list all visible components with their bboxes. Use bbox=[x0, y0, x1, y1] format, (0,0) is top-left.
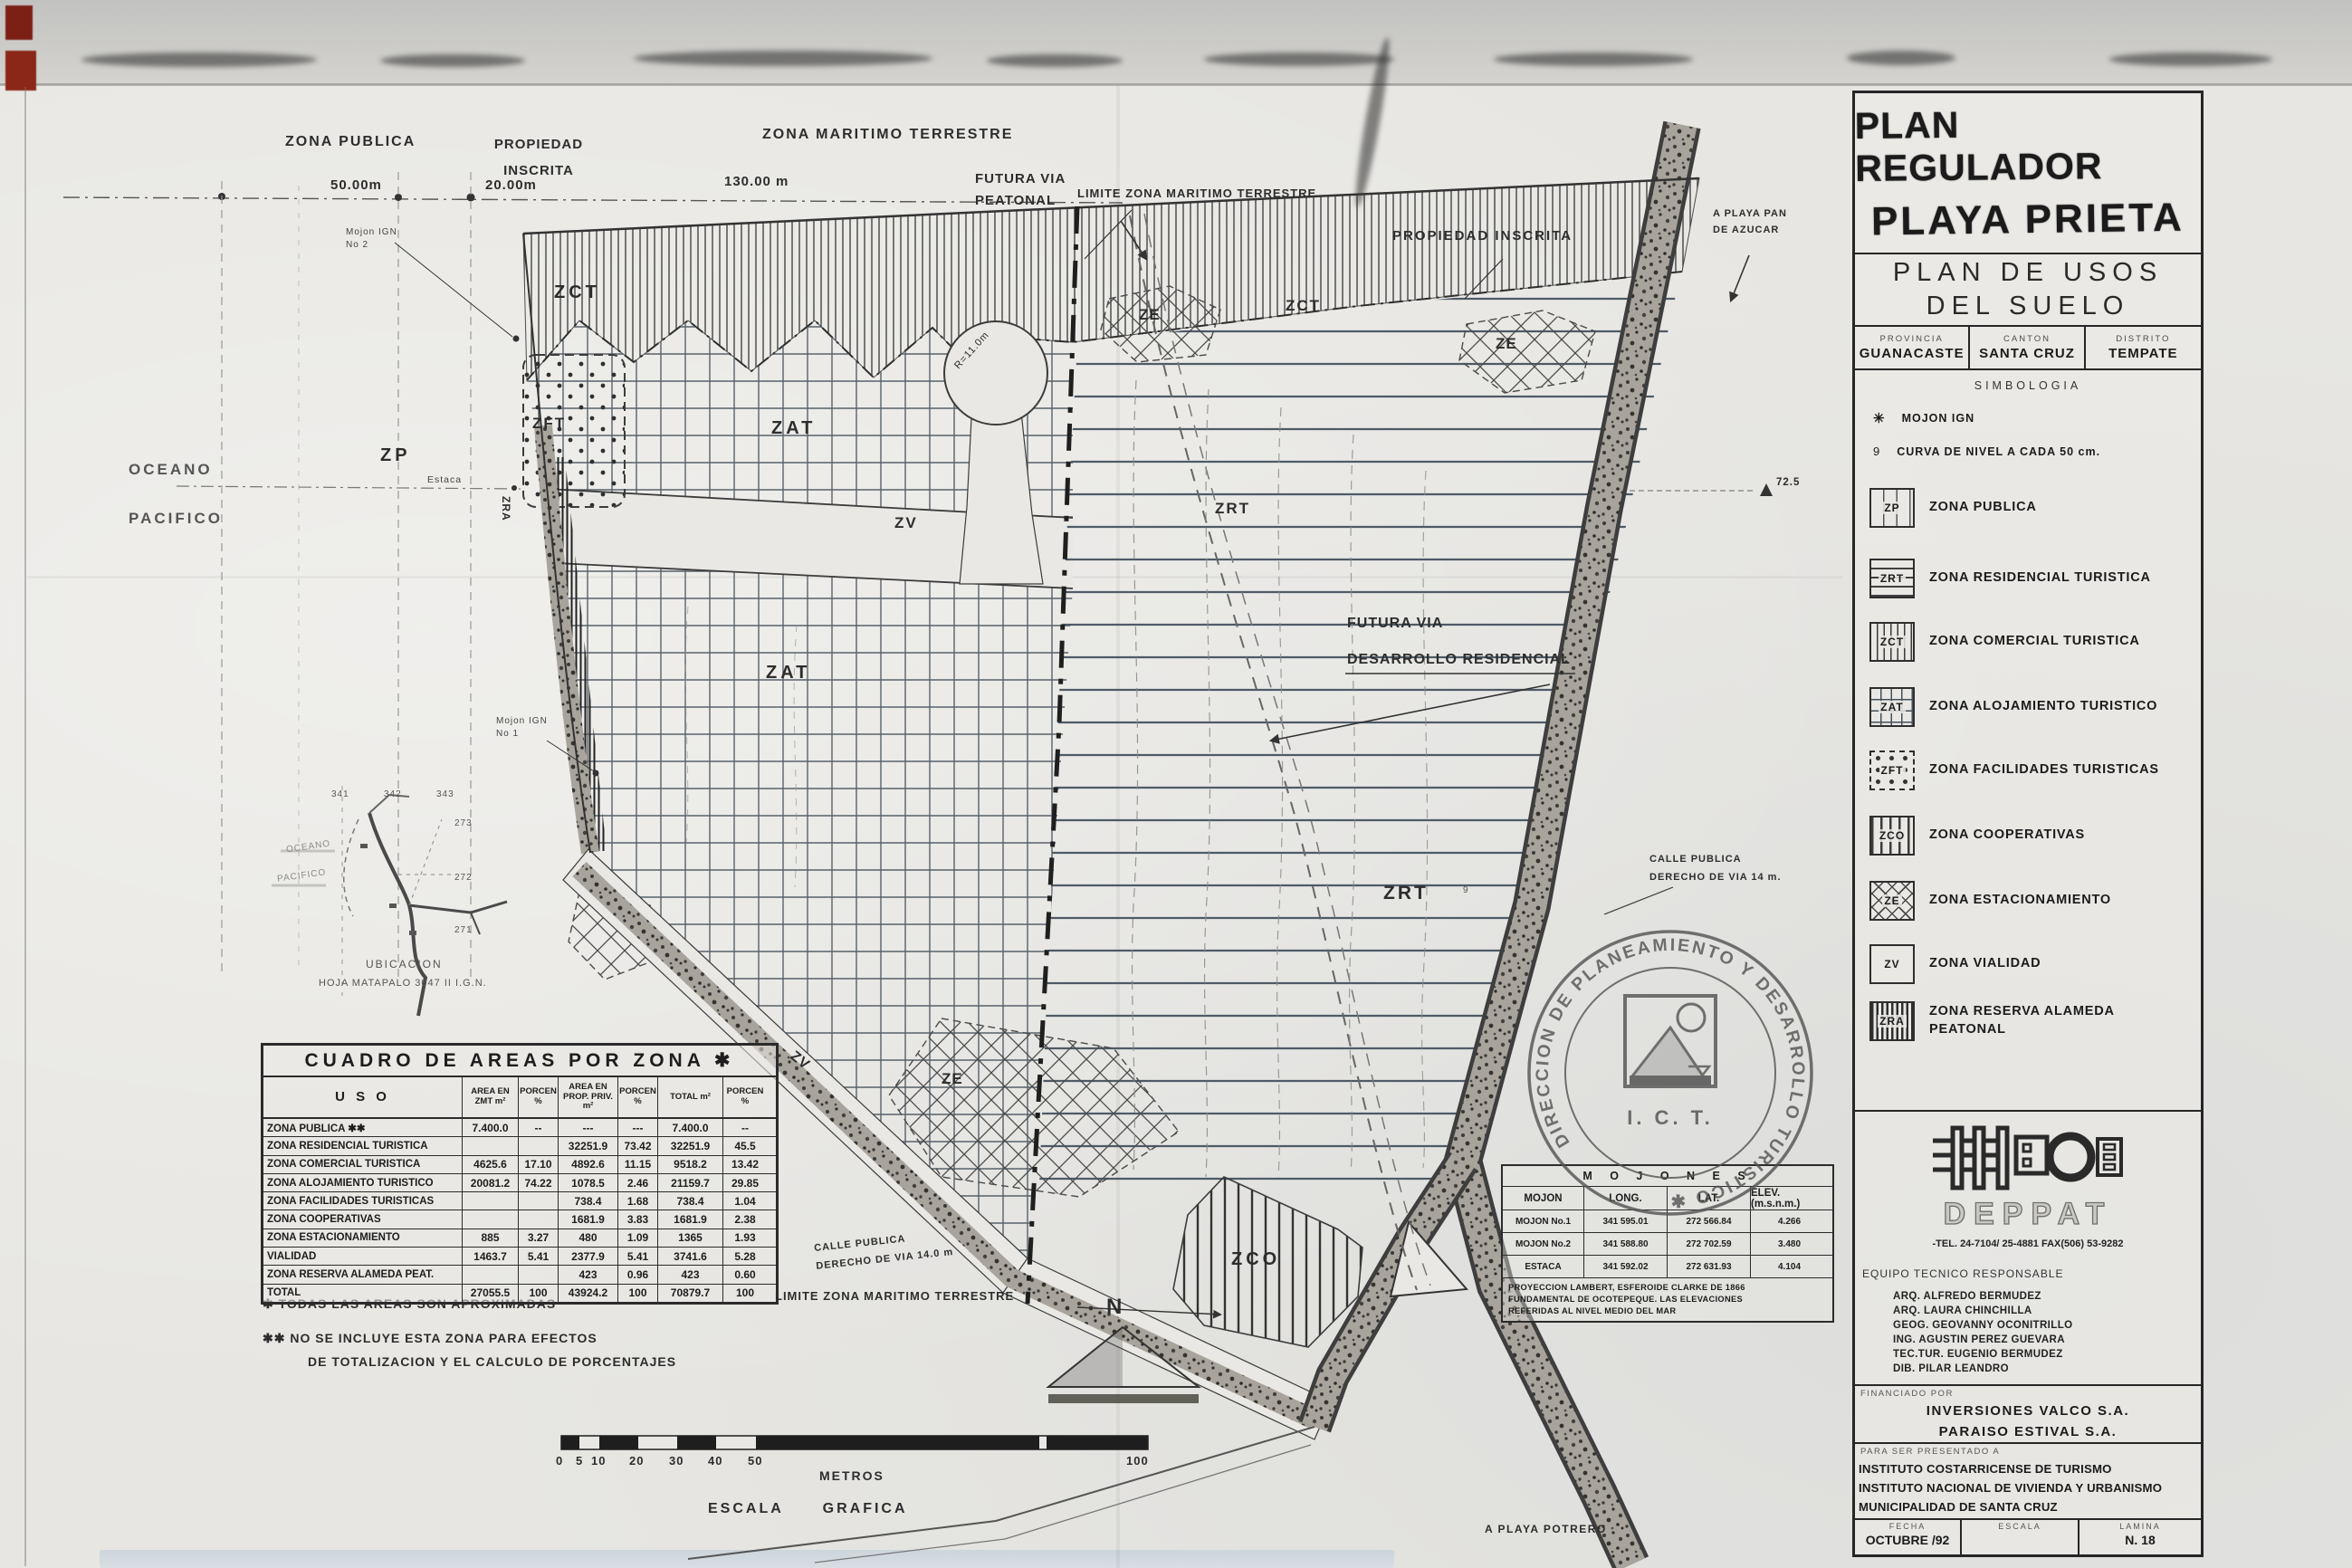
cell-area-priv: 43924.2 bbox=[559, 1285, 618, 1302]
areas-table-body: ZONA PUBLICA ✱✱ 7.400.0 -- --- --- 7.400… bbox=[263, 1119, 776, 1302]
label-calle-publica-right: CALLE PUBLICA DERECHO DE VIA 14 m. bbox=[1649, 851, 1782, 887]
label-zone-zp: ZP bbox=[380, 445, 411, 466]
note-exclusion-1: ✱✱ NO SE INCLUYE ESTA ZONA PARA EFECTOS bbox=[263, 1331, 598, 1346]
subtitle-line-2: DEL SUELO bbox=[1927, 292, 2130, 321]
cell-porcen-zmt: 100 bbox=[519, 1285, 559, 1302]
label-limite-zmt-top: LIMITE ZONA MARITIMO TERRESTRE bbox=[1077, 186, 1316, 200]
cell-uso: ZONA ESTACIONAMIENTO bbox=[263, 1229, 463, 1247]
cell-area-zmt: 885 bbox=[463, 1229, 519, 1247]
label-zona-maritimo-terrestre: ZONA MARITIMO TERRESTRE bbox=[762, 127, 1013, 143]
cell-porcen-priv: 2.46 bbox=[618, 1174, 658, 1191]
team-heading: EQUIPO TECNICO RESPONSABLE bbox=[1862, 1267, 2064, 1280]
legend-row-ze: ZE ZONA ESTACIONAMIENTO bbox=[1869, 881, 2111, 921]
areas-table-row: ZONA COMERCIAL TURISTICA 4625.6 17.10 48… bbox=[263, 1156, 776, 1174]
deppat-logo bbox=[1933, 1124, 2123, 1193]
firm-section: DEPPAT -TEL. 24-7104/ 25-4881 FAX(506) 5… bbox=[1855, 1112, 2201, 1386]
cell-total: 9518.2 bbox=[658, 1156, 723, 1173]
cell-porcen-zmt bbox=[519, 1137, 559, 1154]
cell-area-zmt bbox=[463, 1210, 519, 1228]
cell-porcen-zmt: 5.41 bbox=[519, 1248, 559, 1265]
swatch-zra: ZRA bbox=[1869, 1001, 1915, 1041]
cell-porcen-total: 2.38 bbox=[723, 1210, 767, 1228]
cell-porcen-total: 29.85 bbox=[723, 1174, 767, 1191]
zone-label: ZONA FACILIDADES TURISTICAS bbox=[1929, 761, 2159, 779]
areas-table-row: ZONA ALOJAMIENTO TURISTICO 20081.2 74.22… bbox=[263, 1174, 776, 1192]
swatch-zco: ZCO bbox=[1869, 816, 1915, 856]
cell-porcen-priv: 11.15 bbox=[618, 1156, 658, 1173]
cell-area-priv: 1078.5 bbox=[559, 1174, 618, 1191]
cell-porcen-zmt bbox=[519, 1192, 559, 1209]
cell-area-priv: 423 bbox=[559, 1266, 618, 1283]
cell-lat: 272 631.93 bbox=[1668, 1256, 1751, 1277]
team-member: ARQ. LAURA CHINCHILLA bbox=[1893, 1304, 2072, 1318]
areas-table-header: U S O AREA EN ZMT m² PORCEN % AREA EN PR… bbox=[263, 1077, 776, 1119]
scale-tick-50: 50 bbox=[748, 1454, 762, 1468]
swatch-zat: ZAT bbox=[1869, 687, 1915, 727]
title-block-panel: PLAN REGULADOR PLAYA PRIETA PLAN DE USOS… bbox=[1852, 91, 2204, 1557]
cell-mojon: ESTACA bbox=[1503, 1256, 1584, 1277]
zone-label: ZONA ALOJAMIENTO TURISTICO bbox=[1929, 698, 2157, 716]
legend-row-zco: ZCO ZONA COOPERATIVAS bbox=[1869, 816, 2085, 856]
cell-uso: ZONA PUBLICA ✱✱ bbox=[263, 1119, 463, 1136]
region-canton: CANTON SANTA CRUZ bbox=[1970, 327, 2085, 368]
cell-area-priv: 1681.9 bbox=[559, 1210, 618, 1228]
label-oceano-pacifico: OCEANO PACIFICO bbox=[129, 445, 223, 544]
areas-table-row: ZONA PUBLICA ✱✱ 7.400.0 -- --- --- 7.400… bbox=[263, 1119, 776, 1137]
cell-porcen-priv: --- bbox=[618, 1119, 658, 1136]
label-zone-zct-b: ZCT bbox=[1286, 297, 1321, 315]
label-zona-publica-top: ZONA PUBLICA bbox=[285, 134, 416, 150]
cell-porcen-zmt: 74.22 bbox=[519, 1174, 559, 1191]
zone-label: ZONA VIALIDAD bbox=[1929, 955, 2041, 973]
cell-porcen-zmt: 3.27 bbox=[519, 1229, 559, 1247]
label-dim-130: 130.00 m bbox=[724, 174, 789, 189]
inset-caption-2: HOJA MATAPALO 3047 II I.G.N. bbox=[319, 978, 487, 989]
label-dim-20: 20.00m bbox=[485, 177, 537, 193]
legend-row-zp: ZP ZONA PUBLICA bbox=[1869, 488, 2037, 528]
financed-name: INVERSIONES VALCO S.A. bbox=[1855, 1401, 2201, 1421]
cell-porcen-priv: 3.83 bbox=[618, 1210, 658, 1228]
swatch-zv: ZV bbox=[1869, 944, 1915, 984]
footer-escala: ESCALA bbox=[1962, 1520, 2080, 1554]
inset-grid-273: 273 bbox=[454, 818, 473, 828]
financed-heading: FINANCIADO POR bbox=[1860, 1389, 1954, 1399]
inset-grid-343: 343 bbox=[436, 789, 454, 799]
label-mojon-2: Mojon IGN No 2 bbox=[346, 226, 397, 252]
cell-total: 21159.7 bbox=[658, 1174, 723, 1191]
scale-tick-20: 20 bbox=[629, 1454, 644, 1468]
swatch-zp: ZP bbox=[1869, 488, 1915, 528]
cell-area-zmt: 27055.5 bbox=[463, 1285, 519, 1302]
cell-total: 1365 bbox=[658, 1229, 723, 1247]
legend-row-zrt: ZRT ZONA RESIDENCIAL TURISTICA bbox=[1869, 559, 2151, 598]
label-dim-50: 50.00m bbox=[330, 177, 382, 193]
cell-porcen-total: 45.5 bbox=[723, 1137, 767, 1154]
areas-table-row: TOTAL 27055.5 100 43924.2 100 70879.7 10… bbox=[263, 1285, 776, 1302]
label-line: No 2 bbox=[346, 239, 397, 252]
label-zone-zv-a: ZV bbox=[894, 514, 918, 532]
header-cell: PORCEN % bbox=[723, 1077, 767, 1117]
cell-total: 738.4 bbox=[658, 1192, 723, 1209]
label-zone-zrt-b: ZRT bbox=[1383, 883, 1429, 904]
zone-label: ZONA COMERCIAL TURISTICA bbox=[1929, 633, 2140, 651]
cell-porcen-zmt: -- bbox=[519, 1119, 559, 1136]
title-line-2: PLAYA PRIETA bbox=[1871, 196, 2185, 245]
firm-contact: -TEL. 24-7104/ 25-4881 FAX(506) 53-9282 bbox=[1855, 1238, 2201, 1249]
cell-area-priv: --- bbox=[559, 1119, 618, 1136]
label-line: OCEANO bbox=[129, 445, 223, 494]
scale-unit: METROS bbox=[819, 1468, 884, 1483]
presented-heading: PARA SER PRESENTADO A bbox=[1860, 1447, 2000, 1457]
north-letter: N bbox=[1106, 1295, 1123, 1320]
team-list: ARQ. ALFREDO BERMUDEZARQ. LAURA CHINCHIL… bbox=[1893, 1289, 2072, 1376]
scale-tick-0: 0 bbox=[556, 1454, 563, 1468]
cell-uso: ZONA FACILIDADES TURISTICAS bbox=[263, 1192, 463, 1209]
team-member: ING. AGUSTIN PEREZ GUEVARA bbox=[1893, 1333, 2072, 1347]
legend-row-zv: ZV ZONA VIALIDAD bbox=[1869, 944, 2041, 984]
note-line: REFERIDAS AL NIVEL MEDIO DEL MAR bbox=[1508, 1305, 1827, 1317]
legend-row-zct: ZCT ZONA COMERCIAL TURISTICA bbox=[1869, 622, 2140, 662]
swatch-zft: ZFT bbox=[1869, 751, 1915, 790]
label-a-playa-pan: A PLAYA PAN DE AZUCAR bbox=[1713, 206, 1787, 238]
team-member: DIB. PILAR LEANDRO bbox=[1893, 1362, 2072, 1376]
presented-name: INSTITUTO COSTARRICENSE DE TURISMO bbox=[1859, 1459, 2162, 1478]
label-zone-ze-a: ZE bbox=[1139, 306, 1161, 324]
footer-label: ESCALA bbox=[1962, 1522, 2078, 1531]
label-elevation: 72.5 bbox=[1776, 477, 1800, 488]
areas-table-row: VIALIDAD 1463.7 5.41 2377.9 5.41 3741.6 … bbox=[263, 1248, 776, 1266]
label-a-playa-potrero: A PLAYA POTRERO bbox=[1485, 1523, 1607, 1535]
cell-uso: ZONA RESIDENCIAL TURISTICA bbox=[263, 1137, 463, 1154]
cell-uso: ZONA COOPERATIVAS bbox=[263, 1210, 463, 1228]
team-member: ARQ. ALFREDO BERMUDEZ bbox=[1893, 1289, 2072, 1304]
legend-row-zft: ZFT ZONA FACILIDADES TURISTICAS bbox=[1869, 751, 2159, 790]
scale-bar bbox=[561, 1436, 1148, 1449]
inset-grid-341: 341 bbox=[331, 789, 349, 799]
financed-section: FINANCIADO POR INVERSIONES VALCO S.A.PAR… bbox=[1855, 1386, 2201, 1444]
zone-code: ZFT bbox=[1879, 764, 1906, 777]
label-estaca: Estaca bbox=[427, 474, 462, 485]
label-futura-via-desarrollo-2: DESARROLLO RESIDENCIAL bbox=[1347, 652, 1571, 668]
cell-area-zmt bbox=[463, 1137, 519, 1154]
cell-uso: TOTAL bbox=[263, 1285, 463, 1302]
scale-caption: ESCALA GRAFICA bbox=[708, 1501, 908, 1517]
cell-porcen-total: 1.93 bbox=[723, 1229, 767, 1247]
region-value: GUANACASTE bbox=[1860, 346, 1965, 361]
scale-tick-10: 10 bbox=[591, 1454, 606, 1468]
legend-section: SIMBOLOGIA ✳ MOJON IGN 9 CURVA DE NIVEL … bbox=[1855, 370, 2201, 1112]
label-zone-zra: ZRA bbox=[500, 496, 512, 521]
zone-code: ZCO bbox=[1878, 829, 1907, 842]
label-zone-ze-c: ZE bbox=[942, 1070, 963, 1088]
footer-label: FECHA bbox=[1855, 1522, 1960, 1531]
cell-uso: VIALIDAD bbox=[263, 1248, 463, 1265]
presented-section: PARA SER PRESENTADO A INSTITUTO COSTARRI… bbox=[1855, 1444, 2201, 1520]
cell-porcen-total: -- bbox=[723, 1119, 767, 1136]
footer-label: LAMINA bbox=[2080, 1522, 2201, 1531]
label-zone-zft: ZFT bbox=[532, 415, 566, 433]
cell-total: 1681.9 bbox=[658, 1210, 723, 1228]
label-line: CALLE PUBLICA bbox=[1649, 851, 1782, 869]
cell-porcen-total: 13.42 bbox=[723, 1156, 767, 1173]
legend-label: MOJON IGN bbox=[1902, 412, 1975, 425]
label-propiedad-inscrita-left: PROPIEDAD INSCRITA bbox=[477, 132, 600, 184]
zone-label: ZONA RESIDENCIAL TURISTICA bbox=[1929, 569, 2151, 588]
region-label: PROVINCIA bbox=[1880, 334, 1944, 344]
footer-value: N. 18 bbox=[2080, 1533, 2201, 1547]
cell-uso: ZONA RESERVA ALAMEDA PEAT. bbox=[263, 1266, 463, 1283]
zone-label: ZONA RESERVA ALAMEDA PEATONAL bbox=[1929, 1003, 2186, 1038]
region-value: TEMPATE bbox=[2108, 346, 2177, 361]
title-line-1: PLAN REGULADOR bbox=[1855, 101, 2202, 190]
areas-table-row: ZONA RESERVA ALAMEDA PEAT. 423 0.96 423 … bbox=[263, 1266, 776, 1284]
plan-title: PLAN REGULADOR PLAYA PRIETA bbox=[1855, 93, 2201, 254]
scale-tick-5: 5 bbox=[576, 1454, 583, 1468]
areas-table: CUADRO DE AREAS POR ZONA ✱ U S O AREA EN… bbox=[261, 1043, 779, 1305]
label-line: FUTURA VIA bbox=[975, 168, 1066, 190]
scale-tick-40: 40 bbox=[708, 1454, 722, 1468]
label-zone-zat-b: ZAT bbox=[766, 663, 810, 684]
inset-grid-272: 272 bbox=[454, 873, 473, 883]
cell-total: 3741.6 bbox=[658, 1248, 723, 1265]
cell-porcen-total: 5.28 bbox=[723, 1248, 767, 1265]
zone-label: ZONA PUBLICA bbox=[1929, 499, 2037, 517]
inset-grid-271: 271 bbox=[454, 925, 473, 935]
legend-row-zat: ZAT ZONA ALOJAMIENTO TURISTICO bbox=[1869, 687, 2157, 727]
swatch-ze: ZE bbox=[1869, 881, 1915, 921]
cell-area-priv: 480 bbox=[559, 1229, 618, 1247]
zone-code: ZV bbox=[1882, 958, 1901, 970]
cell-porcen-total: 0.60 bbox=[723, 1266, 767, 1283]
cell-porcen-priv: 100 bbox=[618, 1285, 658, 1302]
zone-label: ZONA COOPERATIVAS bbox=[1929, 827, 2085, 845]
footer-fecha: FECHA OCTUBRE /92 bbox=[1855, 1520, 1962, 1554]
cell-long: 341 592.02 bbox=[1584, 1256, 1668, 1277]
cell-area-zmt bbox=[463, 1192, 519, 1209]
footer-value: OCTUBRE /92 bbox=[1855, 1533, 1960, 1547]
cell-porcen-zmt bbox=[519, 1266, 559, 1283]
cell-porcen-zmt bbox=[519, 1210, 559, 1228]
note-line: PROYECCION LAMBERT, ESFEROIDE CLARKE DE … bbox=[1508, 1282, 1827, 1294]
note-exclusion-2: DE TOTALIZACION Y EL CALCULO DE PORCENTA… bbox=[308, 1354, 676, 1369]
label-contour-9: 9 bbox=[1463, 885, 1469, 895]
label-line: Mojon IGN bbox=[496, 715, 548, 728]
region-value: SANTA CRUZ bbox=[1979, 346, 2075, 361]
ict-stamp: DIRECCION DE PLANEAMIENTO Y DESARROLLO T… bbox=[1503, 905, 1838, 1240]
label-line: No 1 bbox=[496, 728, 548, 741]
inset-grid-342: 342 bbox=[384, 789, 402, 799]
cell-porcen-priv: 1.09 bbox=[618, 1229, 658, 1247]
firm-name: DEPPAT bbox=[1855, 1197, 2201, 1232]
label-zone-zct-a: ZCT bbox=[554, 282, 600, 303]
region-distrito: DISTRITO TEMPATE bbox=[2086, 327, 2201, 368]
label-zone-zrt-a: ZRT bbox=[1215, 500, 1250, 518]
cell-area-zmt: 20081.2 bbox=[463, 1174, 519, 1191]
cell-porcen-priv: 73.42 bbox=[618, 1137, 658, 1154]
cell-porcen-priv: 0.96 bbox=[618, 1266, 658, 1283]
cell-area-zmt: 4625.6 bbox=[463, 1156, 519, 1173]
team-member: TEC.TUR. EUGENIO BERMUDEZ bbox=[1893, 1347, 2072, 1362]
areas-table-row: ZONA COOPERATIVAS 1681.9 3.83 1681.9 2.3… bbox=[263, 1210, 776, 1229]
cell-total: 7.400.0 bbox=[658, 1119, 723, 1136]
areas-table-row: ZONA RESIDENCIAL TURISTICA 32251.9 73.42… bbox=[263, 1137, 776, 1155]
scale-tick-30: 30 bbox=[669, 1454, 684, 1468]
zone-code: ZRT bbox=[1879, 572, 1906, 585]
presented-name: MUNICIPALIDAD DE SANTA CRUZ bbox=[1859, 1497, 2162, 1516]
zone-code: ZAT bbox=[1879, 701, 1905, 713]
presented-name: INSTITUTO NACIONAL DE VIVIENDA Y URBANIS… bbox=[1859, 1478, 2162, 1497]
cell-porcen-zmt: 17.10 bbox=[519, 1156, 559, 1173]
presented-names: INSTITUTO COSTARRICENSE DE TURISMOINSTIT… bbox=[1859, 1459, 2162, 1516]
label-futura-via-desarrollo-1: FUTURA VIA bbox=[1347, 616, 1443, 632]
label-zone-zco: ZCO bbox=[1231, 1249, 1280, 1270]
zone-code: ZE bbox=[1882, 894, 1901, 907]
mojon-star-icon: ✳ bbox=[1873, 410, 1886, 426]
cell-total: 32251.9 bbox=[658, 1137, 723, 1154]
label-zone-zat-a: ZAT bbox=[771, 418, 816, 439]
label-mojon-1: Mojon IGN No 1 bbox=[496, 715, 548, 741]
region-label: DISTRITO bbox=[2116, 334, 2170, 344]
zone-code: ZCT bbox=[1879, 636, 1906, 648]
label-futura-via-peatonal: FUTURA VIA PEATONAL bbox=[975, 168, 1066, 212]
subtitle-line-1: PLAN DE USOS bbox=[1893, 258, 2163, 288]
contour-number-icon: 9 bbox=[1873, 445, 1880, 458]
cell-area-priv: 2377.9 bbox=[559, 1248, 618, 1265]
zone-label: ZONA ESTACIONAMIENTO bbox=[1929, 892, 2111, 910]
cell-area-zmt: 7.400.0 bbox=[463, 1119, 519, 1136]
label-line: A PLAYA PAN bbox=[1713, 206, 1787, 223]
team-member: GEOG. GEOVANNY OCONITRILLO bbox=[1893, 1318, 2072, 1333]
label-zone-ze-b: ZE bbox=[1496, 335, 1517, 353]
header-cell: PORCEN % bbox=[618, 1077, 658, 1117]
plan-subtitle: PLAN DE USOS DEL SUELO bbox=[1855, 254, 2201, 327]
header-cell: U S O bbox=[263, 1077, 463, 1117]
label-propiedad-inscrita-right: PROPIEDAD INSCRITA bbox=[1392, 228, 1573, 244]
footer-lamina: LAMINA N. 18 bbox=[2080, 1520, 2201, 1554]
cell-area-priv: 4892.6 bbox=[559, 1156, 618, 1173]
zone-code: ZRA bbox=[1878, 1015, 1907, 1028]
swatch-zrt: ZRT bbox=[1869, 559, 1915, 598]
legend-mojon-row: ✳ MOJON IGN bbox=[1873, 410, 1974, 426]
label-line: PEATONAL bbox=[975, 190, 1066, 212]
swatch-zct: ZCT bbox=[1869, 622, 1915, 662]
label-line: Mojon IGN bbox=[346, 226, 397, 239]
cell-porcen-priv: 1.68 bbox=[618, 1192, 658, 1209]
cell-total: 70879.7 bbox=[658, 1285, 723, 1302]
cell-porcen-total: 100 bbox=[723, 1285, 767, 1302]
stamp-center-text: I. C. T. bbox=[1627, 1106, 1714, 1129]
mojones-note: PROYECCION LAMBERT, ESFEROIDE CLARKE DE … bbox=[1503, 1278, 1832, 1321]
legend-label: CURVA DE NIVEL A CADA 50 cm. bbox=[1897, 445, 2100, 458]
scale-tick-100: 100 bbox=[1126, 1454, 1149, 1468]
areas-table-row: ZONA FACILIDADES TURISTICAS 738.4 1.68 7… bbox=[263, 1192, 776, 1210]
cell-uso: ZONA COMERCIAL TURISTICA bbox=[263, 1156, 463, 1173]
cell-area-zmt: 1463.7 bbox=[463, 1248, 519, 1265]
scanned-plan-sheet: DIRECCION DE PLANEAMIENTO Y DESARROLLO T… bbox=[0, 0, 2352, 1568]
region-row: PROVINCIA GUANACASTE CANTON SANTA CRUZ D… bbox=[1855, 327, 2201, 370]
cell-porcen-priv: 5.41 bbox=[618, 1248, 658, 1265]
note-line: FUNDAMENTAL DE OCOTEPEQUE. LAS ELEVACION… bbox=[1508, 1294, 1827, 1305]
financed-names: INVERSIONES VALCO S.A.PARAISO ESTIVAL S.… bbox=[1855, 1401, 2201, 1442]
cell-porcen-total: 1.04 bbox=[723, 1192, 767, 1209]
cell-elev: 4.104 bbox=[1751, 1256, 1828, 1277]
areas-table-title: CUADRO DE AREAS POR ZONA ✱ bbox=[263, 1046, 776, 1077]
label-line: PROPIEDAD bbox=[477, 132, 600, 158]
label-line: DE AZUCAR bbox=[1713, 223, 1787, 239]
cell-area-priv: 32251.9 bbox=[559, 1137, 618, 1154]
cell-total: 423 bbox=[658, 1266, 723, 1283]
label-limite-zmt-bottom: LIMITE ZONA MARITIMO TERRESTRE bbox=[775, 1289, 1014, 1303]
areas-table-row: ZONA ESTACIONAMIENTO 885 3.27 480 1.09 1… bbox=[263, 1229, 776, 1248]
legend-row-zra: ZRA ZONA RESERVA ALAMEDA PEATONAL bbox=[1869, 1001, 2186, 1041]
legend-contour-row: 9 CURVA DE NIVEL A CADA 50 cm. bbox=[1873, 445, 2100, 458]
cell-uso: ZONA ALOJAMIENTO TURISTICO bbox=[263, 1174, 463, 1191]
mojones-row: ESTACA 341 592.02 272 631.93 4.104 bbox=[1503, 1256, 1832, 1278]
label-line: PACIFICO bbox=[129, 494, 223, 543]
header-cell: AREA EN ZMT m² bbox=[463, 1077, 519, 1117]
financed-name: PARAISO ESTIVAL S.A. bbox=[1855, 1421, 2201, 1442]
zone-code: ZP bbox=[1882, 502, 1901, 514]
region-provincia: PROVINCIA GUANACASTE bbox=[1855, 327, 1970, 368]
cell-area-priv: 738.4 bbox=[559, 1192, 618, 1209]
footer-row: FECHA OCTUBRE /92 ESCALA LAMINA N. 18 bbox=[1855, 1520, 2201, 1554]
header-cell: TOTAL m² bbox=[658, 1077, 723, 1117]
inset-caption-1: UBICACION bbox=[366, 958, 443, 970]
header-cell: PORCEN % bbox=[519, 1077, 559, 1117]
cell-area-zmt bbox=[463, 1266, 519, 1283]
header-cell: AREA EN PROP. PRIV. m² bbox=[559, 1077, 618, 1117]
label-line: DERECHO DE VIA 14 m. bbox=[1649, 869, 1782, 887]
region-label: CANTON bbox=[2003, 334, 2051, 344]
legend-heading: SIMBOLOGIA bbox=[1855, 379, 2201, 392]
